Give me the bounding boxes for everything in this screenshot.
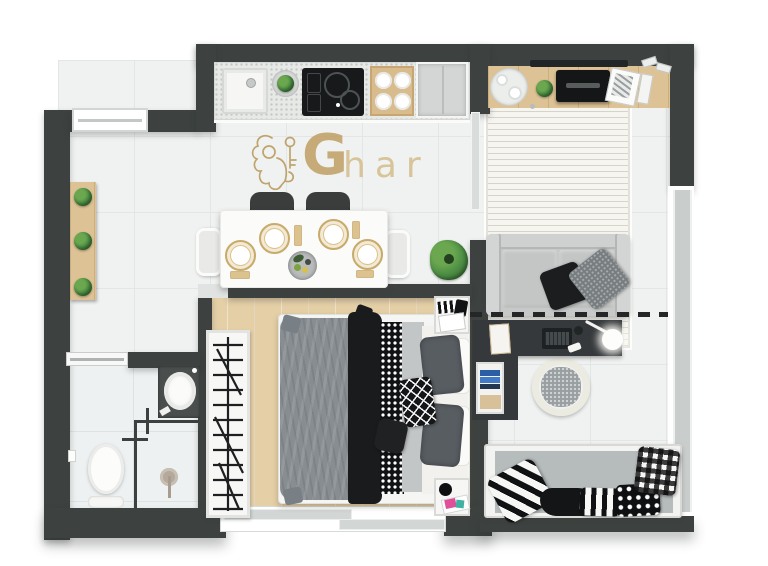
fruit-green [294,264,301,271]
vanity-dot [192,368,197,373]
desk-knob [574,326,583,335]
daybed-pillow-striped-vert [580,487,621,516]
burner-rect-2 [307,94,321,112]
nightstand-book-teal [456,500,465,509]
console-plant-1 [74,188,92,206]
book-dark [480,384,500,389]
window-top-left [72,108,148,132]
shower-glass-vertical [134,420,137,508]
soundbar [530,60,628,67]
daybed-frame [484,444,682,518]
wall-bottom-left [44,508,226,538]
fruit-leaf [292,253,305,264]
door-rod [70,358,124,361]
sofa-arm-left [486,234,501,316]
dining-plate-1 [259,223,290,254]
bed-runner-patterned [380,322,404,494]
fruit-yellow [302,267,308,273]
console-plant-tv [536,80,553,97]
shelf-box [480,395,501,409]
napkin-1 [294,225,302,246]
plate-1 [375,72,392,89]
cup-1 [496,74,508,86]
rack-ladder-icon [209,333,247,515]
watermark-letter-g: G [302,128,348,184]
kitchen-faucet [246,78,256,88]
nightstand-bottom [434,478,470,516]
napkin-4 [356,270,374,278]
dashed-room-divider [470,312,668,317]
window-glass-line [78,119,142,122]
shower-drain [160,468,178,486]
vanity-sink [164,372,196,410]
shower-glass-horizontal [134,420,200,423]
fruit-dark [305,259,311,265]
fridge-cabinet [416,62,468,118]
dining-plate-2 [318,219,349,250]
dining-plate-3 [225,240,256,271]
wall-shelf [476,362,504,414]
plate-4 [394,93,411,110]
nightstand-top [434,296,470,334]
book-blue-1 [480,370,500,376]
nightstand-sketch-card [438,312,466,332]
magazine-art [611,73,633,98]
toilet-flush-plate [68,450,76,462]
burner-rect-1 [307,73,321,93]
nightstand-hat-black [439,483,452,496]
laptop-keys [545,332,569,345]
door-entry-leaf [471,112,480,210]
window-pane-b [339,519,445,530]
plate-2 [394,72,411,89]
plate-tray [370,66,414,116]
burner-ring-2 [340,90,360,110]
sofa-back [486,234,630,249]
cooktop [302,68,364,116]
shower-tick-1 [146,408,149,434]
dining-chair-white-left [196,228,222,276]
window-bedroom [220,506,446,532]
console-plant-3 [74,278,92,296]
vanity [158,366,200,418]
wall-corner-kitchen [196,44,216,132]
nightstand-striped-box [437,300,455,314]
wall-right-upper [670,44,694,190]
desk-chair-seat [541,367,581,407]
wall-divider-top [470,44,490,114]
plate-3 [375,93,392,110]
centerpiece-plate [288,251,317,280]
toilet-bowl [88,444,124,494]
door-bathroom-sliding [66,352,128,366]
toilet-tank [88,496,124,508]
floor-plant-center [444,254,454,264]
tv [556,70,610,102]
book-blue-2 [480,377,500,383]
vanity-soap [159,406,171,416]
tv-stand-line [566,83,600,88]
watermark-letters-har: har [343,148,430,184]
cooktop-dot [336,103,340,107]
drying-rack [206,330,250,518]
herb-plant [277,75,294,92]
watermark: G har [240,126,410,198]
floor-plan: G har [0,0,768,566]
wall-left [44,110,70,540]
bed-pillow-diamond [399,376,437,428]
napkin-2 [352,221,360,239]
desk-lamp [602,329,623,350]
desk-chair [532,358,590,416]
sofa [486,234,630,316]
napkin-3 [230,271,250,279]
bed-throw-black [348,312,382,504]
tray-dot [530,104,535,109]
cup-2 [508,86,522,100]
dining-plate-4 [352,239,383,270]
cabinet-divider [442,66,444,114]
desk-paper [489,323,511,354]
lion-key-emblem-icon [248,130,304,194]
kitchen-sink [222,68,268,114]
decor-tray [490,68,528,106]
shower-tick-2 [122,438,148,441]
bed-duvet-gray [280,318,354,500]
daybed-pillow-gingham [633,446,680,497]
console-plant-2 [74,232,92,250]
drain-stem [168,476,171,498]
floor-plant [430,240,468,280]
